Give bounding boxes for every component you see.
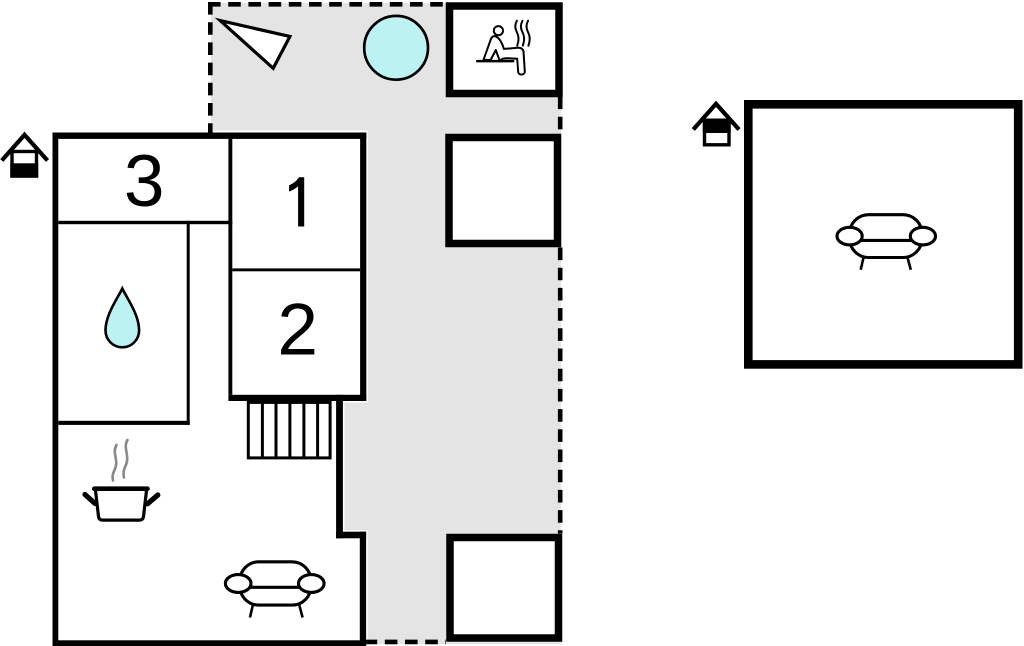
svg-text:3: 3 <box>124 141 165 222</box>
svg-text:2: 2 <box>277 290 318 371</box>
